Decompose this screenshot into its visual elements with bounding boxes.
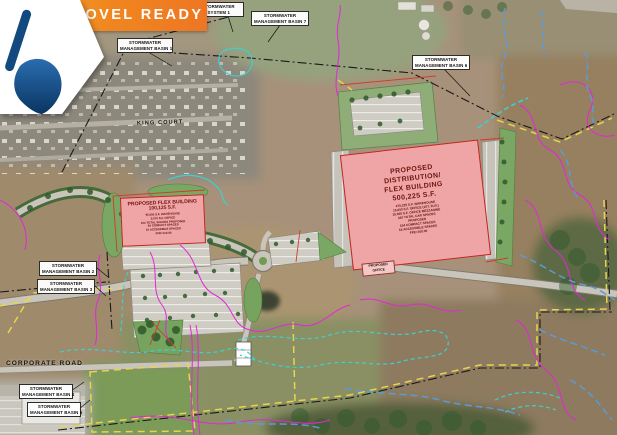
distribution-building: PROPOSED DISTRIBUTION/ FLEX BUILDING 500… bbox=[340, 140, 491, 271]
corporate-road-label: CORPORATE ROAD bbox=[6, 360, 83, 367]
callout-basin-6: STORMWATER MANAGEMENT BASIN 6 bbox=[412, 55, 470, 70]
shovel-ready-logo bbox=[0, 0, 112, 122]
callout-line: MANAGEMENT BASIN 6 bbox=[415, 63, 467, 69]
callout-line: MANAGEMENT BASIN 2 bbox=[42, 269, 94, 275]
callout-basin-7: STORMWATER MANAGEMENT BASIN 7 bbox=[251, 11, 309, 26]
callout-basin-5: STORMWATER MANAGEMENT BASIN 5 bbox=[27, 402, 81, 417]
callout-basin-1: STORMWATER MANAGEMENT BASIN 1 bbox=[117, 38, 173, 53]
callout-basin-2: STORMWATER MANAGEMENT BASIN 2 bbox=[39, 261, 97, 276]
callout-line: MANAGEMENT BASIN 1 bbox=[120, 46, 170, 52]
site-plan-screenshot: PROPOSED FLEX BUILDING 100,125 S.F. 95,0… bbox=[0, 0, 617, 435]
callout-basin-4: STORMWATER MANAGEMENT BASIN 4 bbox=[19, 384, 73, 399]
flex-building-details: 95,050 S.F. WAREHOUSE 5,075 S.F. OFFICE … bbox=[122, 212, 205, 237]
callout-line: MANAGEMENT BASIN 3 bbox=[40, 287, 92, 293]
callout-line: MANAGEMENT BASIN 5 bbox=[30, 410, 78, 416]
callout-basin-3: STORMWATER MANAGEMENT BASIN 3 bbox=[37, 279, 95, 294]
flex-building: PROPOSED FLEX BUILDING 100,125 S.F. 95,0… bbox=[120, 194, 206, 247]
callout-line: MANAGEMENT BASIN 7 bbox=[254, 19, 306, 25]
callout-line: MANAGEMENT BASIN 4 bbox=[22, 392, 70, 398]
